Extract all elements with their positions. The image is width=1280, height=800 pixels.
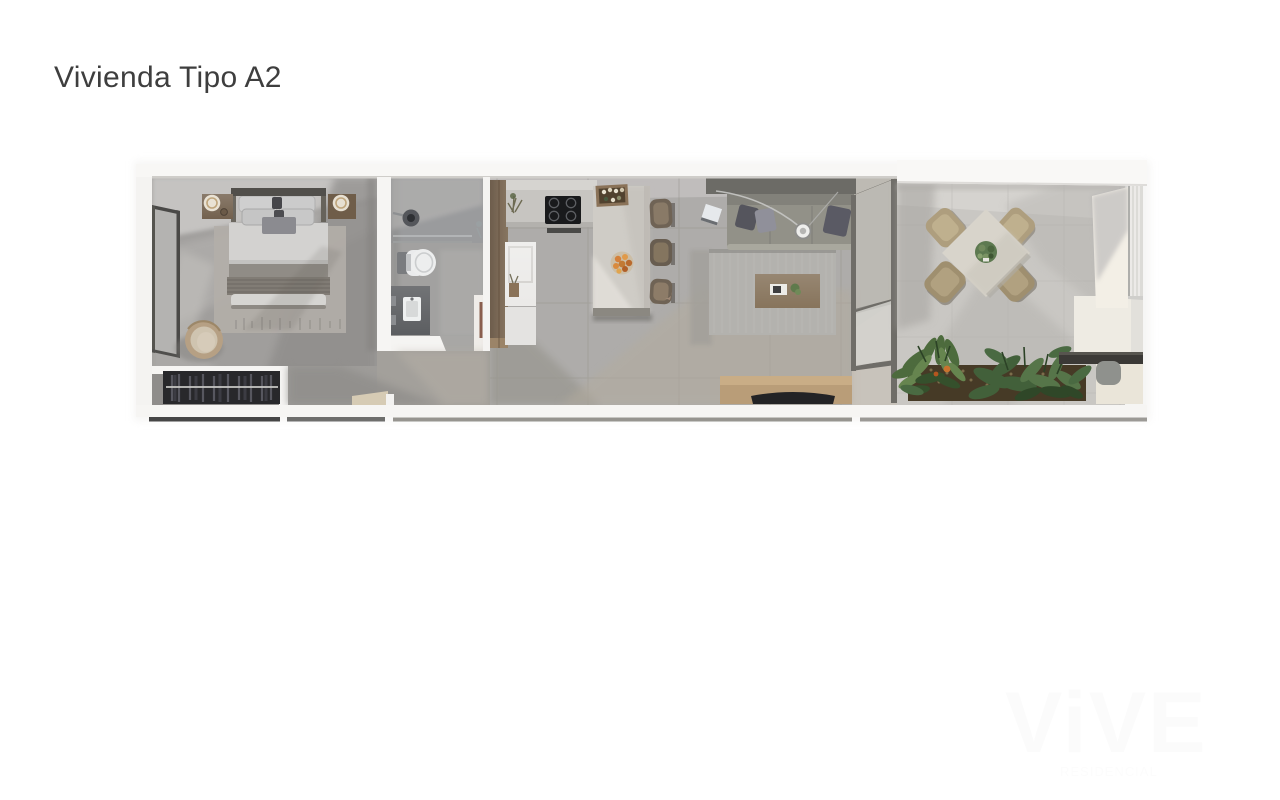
svg-text:RESIDENCIAL: RESIDENCIAL [1060,764,1158,779]
svg-text:ViVE: ViVE [1005,675,1207,771]
